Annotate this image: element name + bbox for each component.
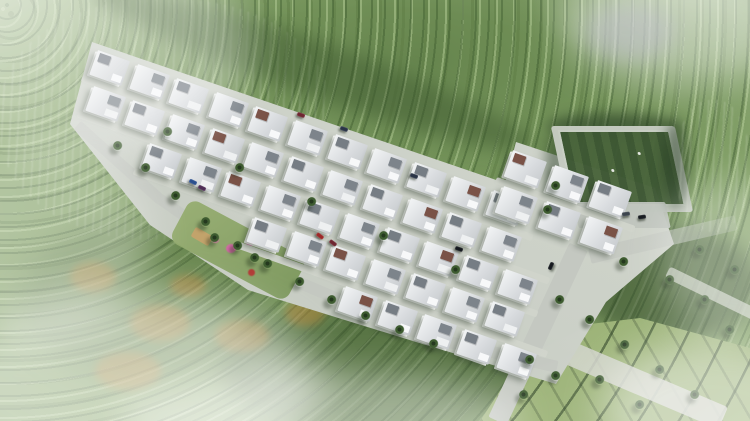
haze-cloud xyxy=(585,5,675,60)
palm-tree xyxy=(620,340,630,350)
palm-tree xyxy=(307,197,317,207)
palm-tree xyxy=(635,400,645,410)
palm-tree xyxy=(543,205,553,215)
flowering-canopy-patch xyxy=(95,352,161,390)
palm-tree xyxy=(327,295,337,305)
palm-tree xyxy=(700,295,710,305)
palm-tree xyxy=(171,191,181,201)
flowering-canopy-patch xyxy=(70,262,116,292)
palm-forest-right-of-field xyxy=(676,100,750,232)
palm-tree xyxy=(690,390,700,400)
palm-tree xyxy=(250,253,260,263)
palm-tree xyxy=(295,277,305,287)
palm-tree xyxy=(595,375,605,385)
palm-tree xyxy=(113,141,123,151)
flowering-canopy-patch xyxy=(215,320,269,352)
palm-tree xyxy=(655,365,665,375)
palm-tree xyxy=(551,181,561,191)
flowering-tree xyxy=(248,269,255,276)
palm-tree xyxy=(725,325,735,335)
palm-tree xyxy=(163,127,173,137)
palm-tree xyxy=(555,295,565,305)
palm-tree xyxy=(695,245,705,255)
palm-tree xyxy=(379,231,389,241)
palm-tree xyxy=(519,390,529,400)
flowering-canopy-patch xyxy=(170,275,206,297)
flowering-canopy-patch xyxy=(130,305,190,341)
aerial-villa-render xyxy=(0,0,750,421)
palm-tree xyxy=(551,371,561,381)
palm-tree xyxy=(429,339,439,349)
palm-tree xyxy=(361,311,371,321)
palm-tree xyxy=(585,315,595,325)
palm-tree xyxy=(210,233,220,243)
palm-tree xyxy=(233,241,243,251)
palm-tree xyxy=(665,275,675,285)
palm-tree xyxy=(263,259,273,269)
palm-tree xyxy=(619,257,629,267)
palm-tree xyxy=(525,355,535,365)
palm-tree xyxy=(201,217,211,227)
palm-tree xyxy=(451,265,461,275)
palm-tree xyxy=(235,163,245,173)
haze-cloud xyxy=(560,0,750,90)
palm-tree xyxy=(395,325,405,335)
palm-tree xyxy=(730,265,740,275)
palm-tree xyxy=(141,163,151,173)
